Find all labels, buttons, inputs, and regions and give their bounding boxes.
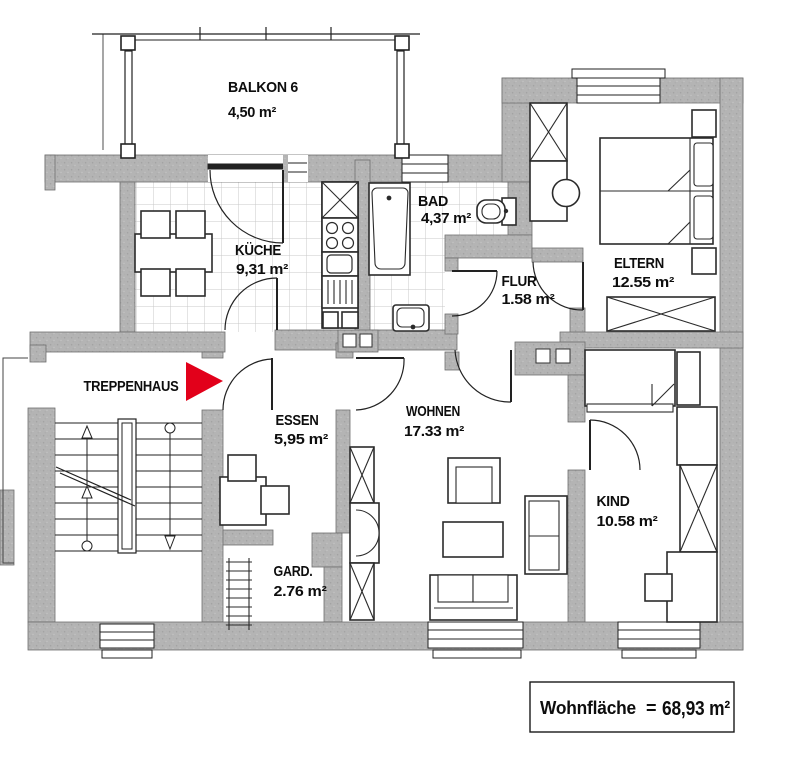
room-area-wohnen: 17.33 m² [404,424,465,440]
eltern-dresser [530,161,580,221]
room-area-bad: 4,37 m² [421,211,471,227]
garderobe-rack [226,558,252,630]
room-name-bad: BAD [418,193,448,210]
kind-desk [645,552,717,622]
bathroom-sink [393,305,429,331]
eltern-wardrobe-bottom [607,297,715,331]
balcony-area: 4,50 m² [228,105,276,121]
kitchen-unit [322,182,358,328]
room-area-essen: 5,95 m² [274,432,329,448]
room-name-essen: ESSEN [276,412,319,429]
room-name-kueche: KÜCHE [235,242,281,259]
eltern-wardrobe [530,103,567,161]
loveseat [525,496,567,574]
staircase [55,419,202,553]
room-name-kind: KIND [597,493,630,510]
double-bed [600,138,713,244]
toilet [477,198,516,225]
room-area-flur: 1.58 m² [502,292,556,308]
wohnen-shelf-unit [350,447,379,620]
room-name-eltern: ELTERN [614,255,664,272]
floor-plan: BALKON 6 4,50 m² KÜCHE 9,31 m² BAD 4,37 … [0,0,807,777]
balcony-name: BALKON 6 [228,79,298,96]
stair-direction-down [165,423,175,549]
eltern-nightstand-top [692,110,716,137]
room-area-garderobe: 2.76 m² [274,584,328,600]
total-area-equals: = [646,698,656,718]
kind-shelf [677,407,717,465]
door-apartment-entry [223,358,272,410]
door-essen-wohnen [356,358,404,410]
room-name-garderobe: GARD. [274,563,313,580]
door-flur-wohnen [455,350,511,402]
entrance-arrow-icon [186,362,223,401]
sofa [430,575,517,620]
room-area-kueche: 9,31 m² [236,262,289,278]
coffee-table [443,522,503,557]
kind-wardrobe [680,465,717,552]
total-area-value: 68,93 m² [662,698,730,720]
room-area-eltern: 12.55 m² [612,275,675,291]
kind-bed [585,350,675,412]
stairwell-label: TREPPENHAUS [84,378,179,395]
stair-direction-up [82,426,92,551]
door-wohnen-kind [590,420,640,470]
total-area-label: Wohnfläche [540,698,636,718]
total-area-box: Wohnfläche = 68,93 m² [530,682,734,732]
armchair [448,458,500,503]
room-area-kind: 10.58 m² [597,514,659,530]
room-name-wohnen: WOHNEN [406,403,460,420]
floor-plan-page: BALKON 6 4,50 m² KÜCHE 9,31 m² BAD 4,37 … [0,0,807,777]
eltern-nightstand-bottom [692,248,716,274]
essen-table-and-chairs [220,455,289,525]
kind-nightstand [677,352,700,405]
door-flur-bad [452,271,497,316]
room-name-flur: FLUR [502,273,537,290]
bathtub [369,183,410,275]
